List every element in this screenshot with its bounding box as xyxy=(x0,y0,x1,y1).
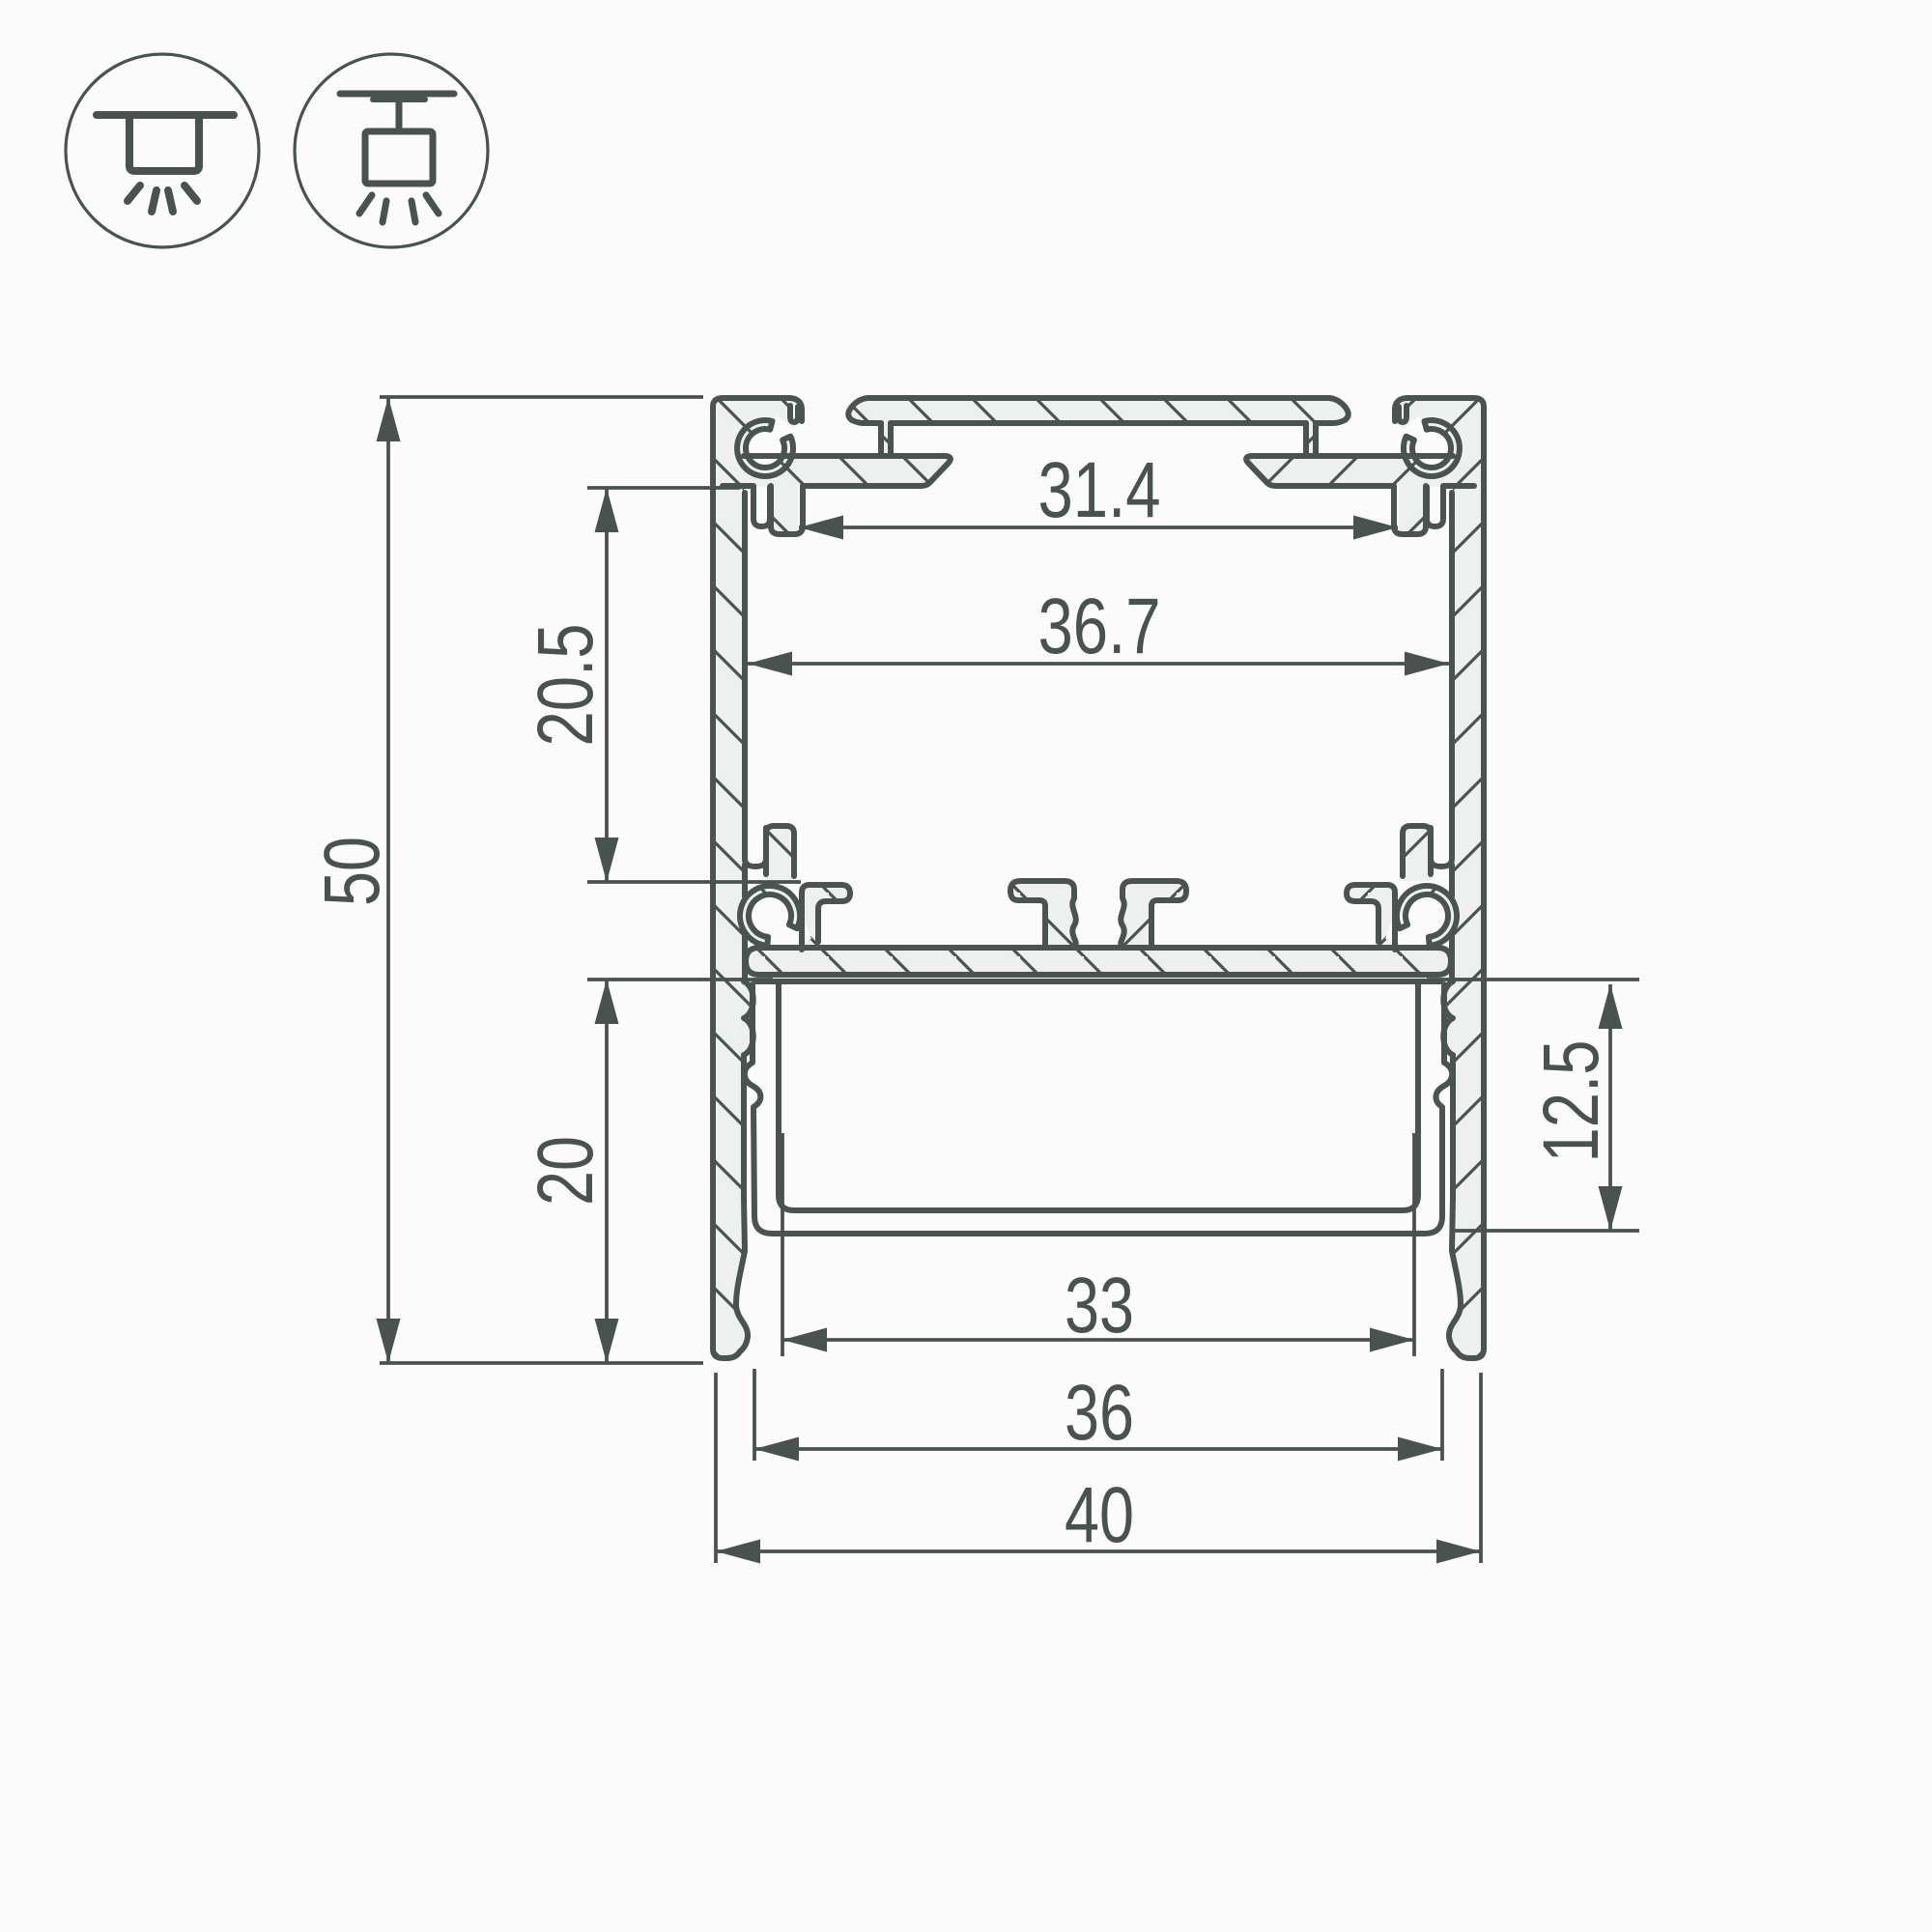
svg-text:33: 33 xyxy=(1065,1262,1134,1350)
svg-text:36: 36 xyxy=(1065,1369,1134,1457)
svg-text:20.5: 20.5 xyxy=(522,624,610,747)
svg-text:36.7: 36.7 xyxy=(1038,582,1161,670)
svg-text:31.4: 31.4 xyxy=(1038,446,1161,534)
svg-text:12.5: 12.5 xyxy=(1527,1040,1615,1163)
svg-text:20: 20 xyxy=(522,1136,610,1206)
svg-text:40: 40 xyxy=(1065,1471,1134,1559)
svg-text:50: 50 xyxy=(308,837,396,906)
